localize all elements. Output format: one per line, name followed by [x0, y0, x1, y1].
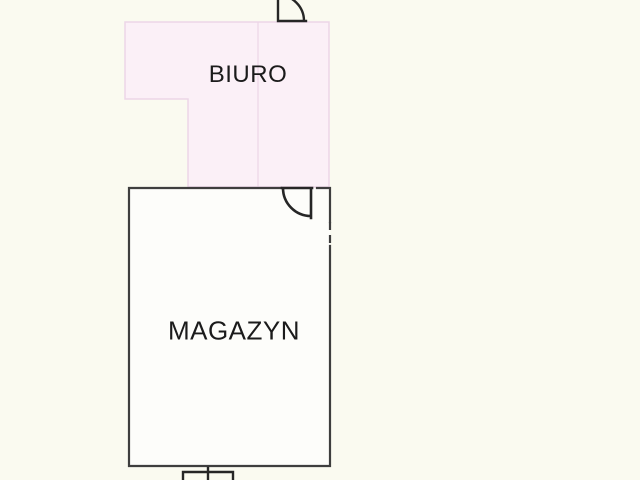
floor-plan-canvas: BIURO MAGAZYN	[0, 0, 640, 480]
room-label-biuro: BIURO	[209, 61, 288, 89]
floor-plan-drawing	[0, 0, 640, 480]
room-label-magazyn: MAGAZYN	[168, 316, 300, 347]
